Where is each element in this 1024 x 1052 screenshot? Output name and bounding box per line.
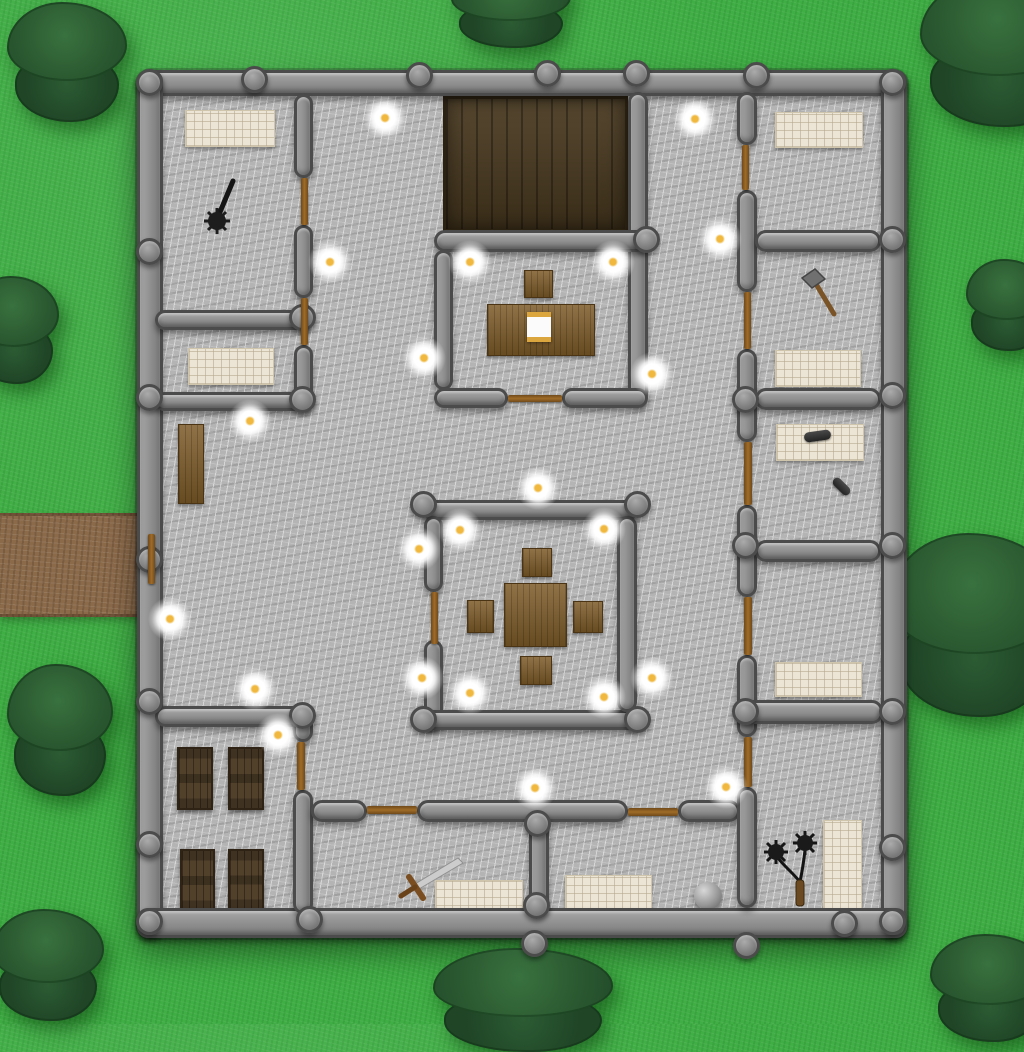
tree — [963, 259, 1024, 351]
wall-segment — [737, 787, 757, 908]
furniture-dining-table[interactable] — [504, 583, 567, 647]
wall-knob — [410, 491, 437, 518]
wall-knob — [410, 706, 437, 733]
warhammer-icon — [798, 266, 842, 320]
tree-canopy-top — [7, 2, 127, 81]
wall-knob — [624, 491, 651, 518]
mace-icon — [202, 176, 242, 234]
wall-segment — [294, 94, 313, 178]
wall-segment — [678, 800, 740, 822]
bed[interactable] — [775, 112, 863, 148]
door[interactable] — [431, 592, 438, 644]
bed[interactable] — [565, 875, 652, 911]
dirt-path — [0, 513, 152, 617]
tree — [4, 664, 116, 796]
sword-icon — [392, 855, 464, 901]
item-hammer[interactable] — [798, 266, 842, 320]
wall-knob — [633, 226, 660, 253]
wall-knob — [136, 238, 163, 265]
bed[interactable] — [775, 662, 862, 697]
tree-canopy-top — [966, 259, 1024, 320]
wall-segment — [562, 388, 648, 408]
furniture-chair[interactable] — [524, 270, 553, 298]
tree-canopy-top — [433, 948, 613, 1017]
wall-knob — [296, 906, 323, 933]
wall-knob — [136, 69, 163, 96]
flail-icon — [756, 828, 820, 908]
wall-knob — [136, 831, 163, 858]
game-map[interactable] — [0, 0, 1024, 1024]
furniture-stool-west[interactable] — [467, 600, 494, 633]
scroll[interactable] — [527, 312, 551, 342]
wall-segment — [881, 70, 907, 938]
wall-segment — [422, 710, 639, 730]
wall-segment — [755, 388, 881, 410]
door[interactable] — [744, 292, 751, 349]
wall-knob — [732, 386, 759, 413]
wall-segment — [755, 540, 881, 562]
wall-knob — [879, 226, 906, 253]
wall-segment — [434, 250, 453, 390]
door[interactable] — [744, 597, 752, 655]
wall-knob — [136, 908, 163, 935]
furniture-stool-south[interactable] — [520, 656, 552, 685]
wall-knob — [523, 892, 550, 919]
tree-canopy-top — [7, 664, 112, 751]
bed[interactable] — [185, 110, 275, 147]
wall-knob — [879, 532, 906, 559]
wall-knob — [879, 382, 906, 409]
tree — [447, 0, 575, 48]
bed[interactable] — [188, 348, 274, 385]
bed[interactable] — [775, 350, 861, 387]
wall-segment — [417, 800, 628, 822]
tree-canopy-top — [930, 934, 1024, 1005]
tree-canopy-top — [0, 909, 104, 983]
crate[interactable] — [228, 747, 264, 810]
wall-knob — [524, 810, 551, 837]
wall-knob — [743, 62, 770, 89]
wall-segment — [617, 516, 637, 712]
wall-knob — [623, 60, 650, 87]
door[interactable] — [301, 178, 308, 225]
wall-segment — [294, 225, 313, 298]
wall-knob — [879, 698, 906, 725]
door[interactable] — [508, 395, 562, 402]
wall-segment — [737, 92, 757, 145]
wall-segment — [422, 500, 639, 520]
furniture-bench[interactable] — [178, 424, 204, 504]
door[interactable] — [367, 806, 417, 814]
tree-canopy-top — [889, 533, 1024, 654]
wall-knob — [732, 698, 759, 725]
wall-segment — [293, 790, 313, 914]
item-sword[interactable] — [392, 855, 464, 901]
tree — [3, 2, 131, 122]
wall-knob — [879, 834, 906, 861]
wall-knob — [879, 908, 906, 935]
item-flail[interactable] — [756, 828, 820, 908]
wall-knob — [241, 66, 268, 93]
wall-knob — [406, 62, 433, 89]
furniture-stool-east[interactable] — [573, 601, 603, 633]
wall-segment — [311, 800, 367, 822]
door[interactable] — [744, 442, 752, 505]
wall-knob — [624, 706, 651, 733]
wall-knob — [732, 532, 759, 559]
wall-knob — [733, 932, 760, 959]
wall-knob — [289, 702, 316, 729]
wall-segment — [155, 706, 307, 727]
wall-segment — [434, 388, 508, 408]
item-mace[interactable] — [202, 176, 242, 234]
wall-knob — [136, 688, 163, 715]
door[interactable] — [148, 534, 155, 584]
wall-knob — [136, 384, 163, 411]
wall-segment — [137, 908, 907, 938]
crate[interactable] — [180, 849, 215, 912]
crate[interactable] — [177, 747, 213, 810]
wall-segment — [737, 190, 757, 292]
item-sphere[interactable] — [694, 882, 722, 910]
wall-segment — [137, 70, 163, 938]
door[interactable] — [297, 742, 305, 790]
wall-knob — [534, 60, 561, 87]
bed[interactable] — [823, 820, 862, 912]
wall-knob — [831, 910, 858, 937]
wall-segment — [424, 516, 443, 592]
wall-segment — [755, 230, 881, 252]
crate[interactable] — [228, 849, 264, 911]
wall-knob — [289, 386, 316, 413]
wall-segment — [434, 230, 648, 252]
tree — [427, 948, 619, 1052]
door[interactable] — [301, 298, 308, 345]
door[interactable] — [742, 145, 749, 190]
door[interactable] — [744, 737, 752, 787]
furniture-stool-north[interactable] — [522, 548, 552, 577]
tree — [915, 0, 1024, 127]
tree — [926, 934, 1024, 1042]
tree — [0, 276, 62, 384]
wall-knob — [879, 69, 906, 96]
door[interactable] — [628, 808, 678, 816]
tree-canopy-top — [0, 276, 59, 347]
tree — [0, 909, 108, 1021]
wood-floor — [443, 96, 628, 232]
wall-knob — [521, 930, 548, 957]
